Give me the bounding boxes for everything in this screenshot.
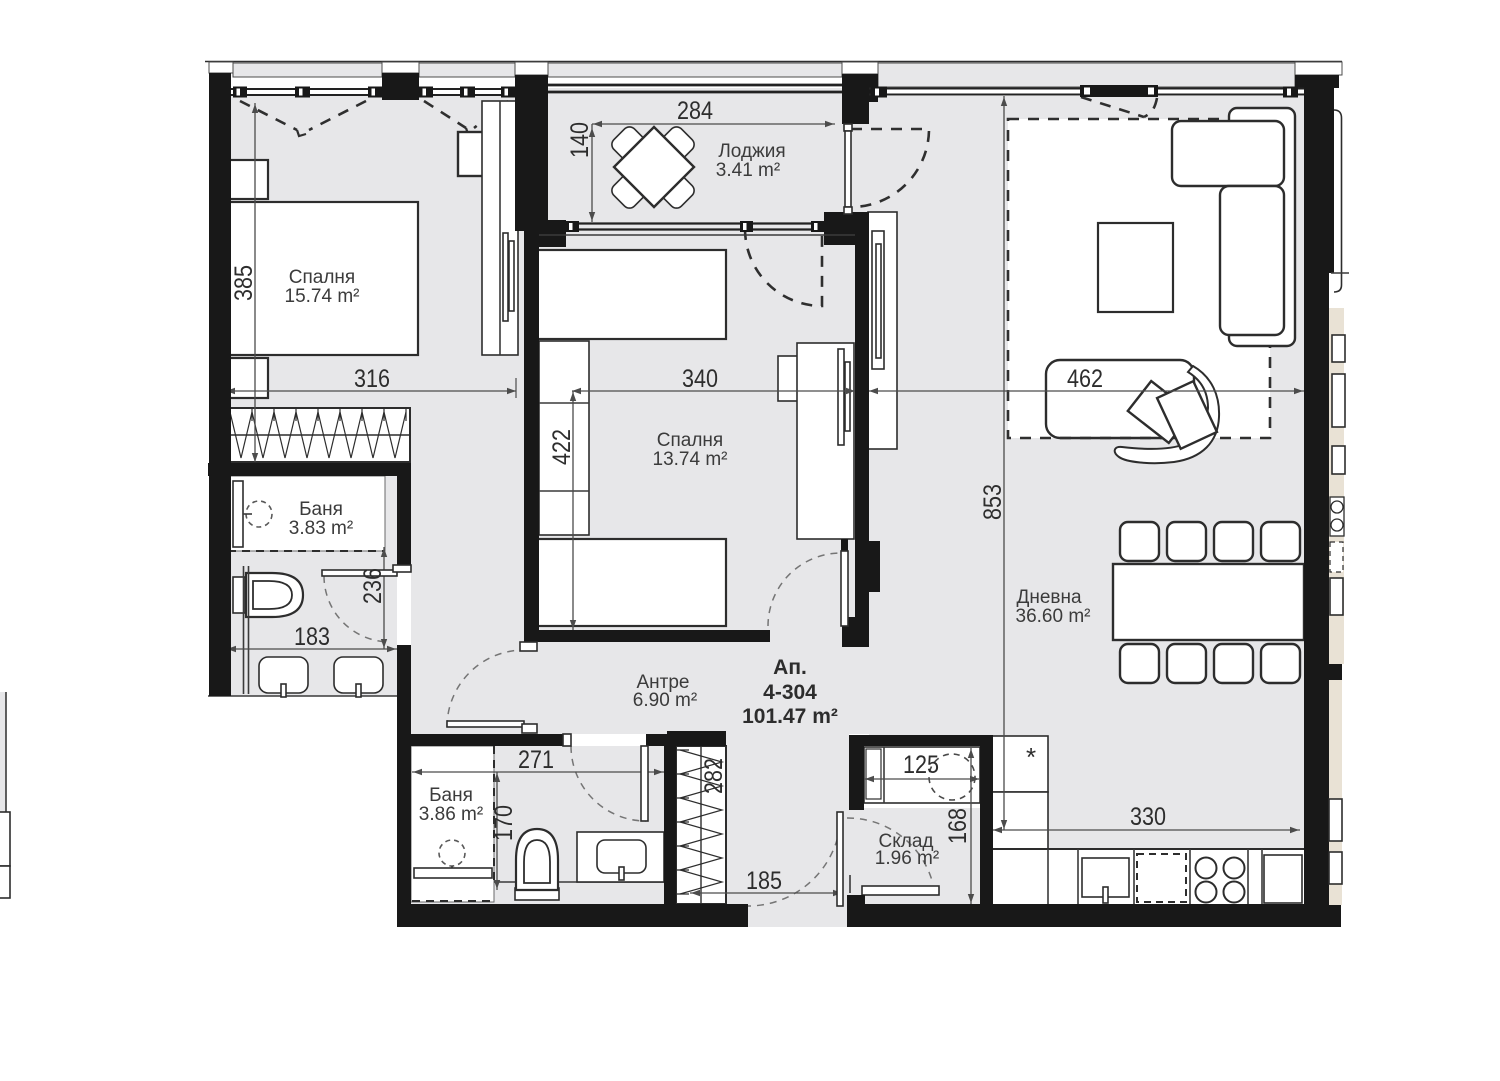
svg-text:101.47 m²: 101.47 m² — [742, 705, 838, 728]
svg-text:Баня: Баня — [429, 785, 473, 806]
svg-text:282: 282 — [700, 758, 728, 794]
svg-text:1.96 m²: 1.96 m² — [875, 848, 939, 869]
svg-text:316: 316 — [354, 365, 390, 393]
svg-text:185: 185 — [746, 867, 782, 895]
svg-text:6.90 m²: 6.90 m² — [633, 690, 697, 711]
svg-text:271: 271 — [518, 746, 554, 774]
svg-text:3.83 m²: 3.83 m² — [289, 518, 353, 539]
svg-text:853: 853 — [979, 484, 1007, 520]
svg-text:Спалня: Спалня — [289, 267, 355, 288]
svg-text:236: 236 — [359, 568, 387, 604]
svg-text:Спалня: Спалня — [657, 430, 723, 451]
svg-text:183: 183 — [294, 623, 330, 651]
svg-text:*: * — [1026, 742, 1036, 772]
svg-text:Дневна: Дневна — [1016, 587, 1082, 608]
svg-text:36.60 m²: 36.60 m² — [1016, 606, 1091, 627]
svg-text:284: 284 — [677, 97, 713, 125]
svg-text:3.86 m²: 3.86 m² — [419, 804, 483, 825]
svg-text:422: 422 — [548, 429, 576, 465]
svg-text:462: 462 — [1067, 365, 1103, 393]
svg-text:140: 140 — [566, 122, 594, 158]
svg-text:340: 340 — [682, 365, 718, 393]
svg-text:Ап.: Ап. — [773, 656, 807, 679]
svg-text:13.74 m²: 13.74 m² — [653, 449, 728, 470]
svg-text:4-304: 4-304 — [763, 681, 817, 704]
svg-text:330: 330 — [1130, 803, 1166, 831]
svg-text:Лоджия: Лоджия — [718, 141, 785, 162]
svg-text:15.74 m²: 15.74 m² — [285, 286, 360, 307]
svg-text:385: 385 — [230, 265, 258, 301]
svg-text:3.41 m²: 3.41 m² — [716, 160, 780, 181]
svg-text:168: 168 — [944, 808, 972, 844]
svg-text:125: 125 — [903, 751, 939, 779]
svg-text:170: 170 — [490, 805, 518, 841]
svg-text:Баня: Баня — [299, 499, 343, 520]
